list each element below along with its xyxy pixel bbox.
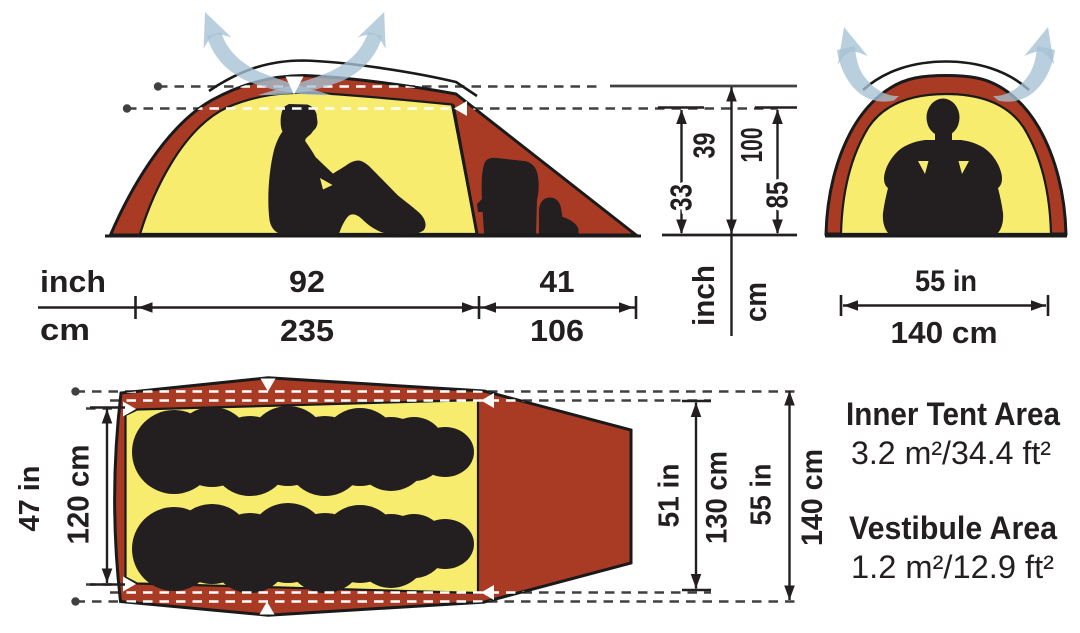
svg-text:3.2 m²/34.4 ft²: 3.2 m²/34.4 ft² bbox=[851, 435, 1051, 471]
svg-text:inch: inch bbox=[686, 265, 721, 326]
svg-text:92: 92 bbox=[289, 264, 325, 299]
svg-text:120 cm: 120 cm bbox=[61, 445, 96, 545]
svg-text:55 in: 55 in bbox=[915, 265, 977, 298]
svg-text:inch: inch bbox=[40, 264, 106, 299]
svg-text:106: 106 bbox=[530, 313, 584, 348]
svg-text:39: 39 bbox=[687, 133, 722, 159]
svg-text:1.2 m²/12.9 ft²: 1.2 m²/12.9 ft² bbox=[851, 549, 1054, 585]
svg-text:Inner Tent Area: Inner Tent Area bbox=[846, 396, 1060, 432]
svg-text:51 in: 51 in bbox=[654, 464, 686, 528]
svg-text:47 in: 47 in bbox=[14, 466, 46, 532]
svg-text:140 cm: 140 cm bbox=[891, 315, 998, 350]
svg-text:cm: cm bbox=[738, 282, 773, 322]
svg-text:140 cm: 140 cm bbox=[796, 449, 829, 546]
svg-text:85: 85 bbox=[760, 182, 795, 209]
svg-text:cm: cm bbox=[40, 312, 90, 347]
svg-text:235: 235 bbox=[280, 313, 334, 348]
svg-text:55 in: 55 in bbox=[746, 464, 778, 526]
svg-text:41: 41 bbox=[540, 264, 575, 299]
svg-text:33: 33 bbox=[664, 184, 699, 211]
svg-text:100: 100 bbox=[734, 128, 769, 163]
svg-text:Vestibule Area: Vestibule Area bbox=[849, 510, 1057, 546]
svg-text:130 cm: 130 cm bbox=[701, 451, 734, 544]
